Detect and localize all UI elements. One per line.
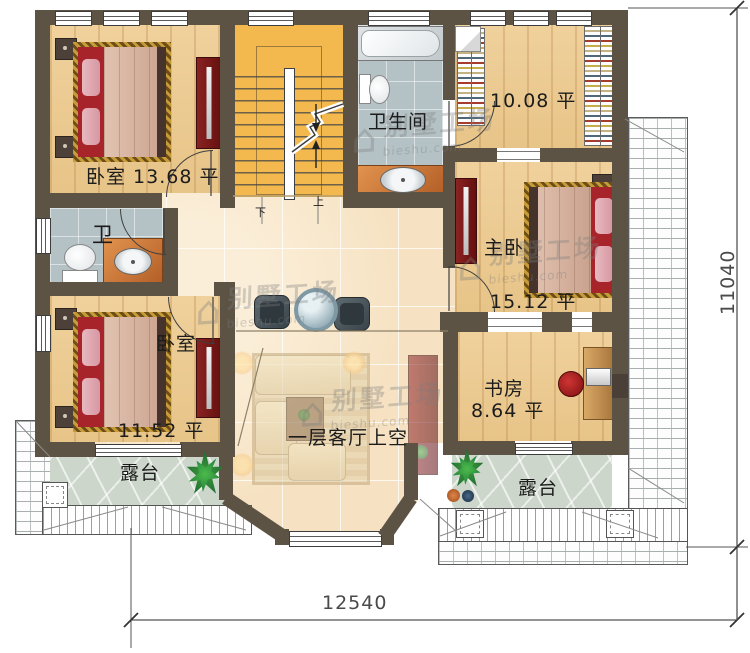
wall-master-bottom-b [542, 312, 572, 332]
wall-bedroom1-bottom [35, 193, 162, 208]
sofa [255, 355, 351, 395]
stair-mark-up: 上 [313, 193, 324, 209]
window [95, 444, 182, 457]
label-bedroom-topleft: 卧室 13.68 平 [86, 162, 219, 189]
window [36, 315, 51, 352]
passage-threshold [572, 318, 592, 327]
flower-pot [447, 489, 460, 502]
computer-monitor [586, 368, 611, 386]
stone-trim-right [628, 117, 688, 565]
wall-niche [612, 374, 628, 398]
label-void: 一层客厅上空 [288, 423, 408, 450]
terrace-right-stone-band [438, 540, 688, 565]
plant [450, 448, 484, 490]
tv-cabinet [455, 178, 477, 264]
wall-toilet-bottom [35, 282, 178, 296]
window [556, 11, 592, 26]
label-master-name: 主卧 [484, 233, 524, 260]
terrace-pillar [456, 510, 484, 538]
terrace-pillar [42, 482, 68, 508]
tv-cabinet [196, 57, 222, 149]
wall-study-west [443, 332, 458, 441]
office-chair [558, 371, 584, 397]
label-bathroom: 卫生间 [368, 107, 428, 134]
wall-stairs-bathroom [343, 10, 358, 192]
dimension-width: 12540 [322, 592, 382, 614]
lamp-glow [342, 351, 366, 375]
stair-railing [284, 68, 295, 200]
wall-bay-post-l [275, 529, 289, 545]
wall-study-bottom-b [571, 441, 612, 455]
label-toilet: 卫 [92, 219, 114, 249]
dimension-height: 11040 [717, 250, 739, 315]
window [248, 11, 294, 26]
wall-bathroom-bottom [343, 192, 455, 208]
wall-toilet-bottom-stub [214, 282, 235, 296]
label-bedroom2-area: 11.52 平 [118, 416, 204, 443]
window [513, 11, 549, 26]
wall-closet-bottom-r [540, 148, 612, 162]
bed-master [524, 182, 622, 298]
chair [254, 295, 290, 329]
stair-mark-down: 下 [255, 204, 266, 220]
flower-pot [462, 490, 474, 502]
floor-plan: 卧室 13.68 平 10.08 平 卫生间 主卧 15.12 平 书房 8.6… [0, 0, 750, 653]
label-terrace-left: 露台 [120, 458, 160, 485]
wall-master-bottom-c [592, 312, 612, 332]
wall-bedroom1-stairs [220, 10, 235, 208]
window [55, 11, 92, 26]
wall-bay-post-r [380, 529, 394, 545]
label-bedroom2-name: 卧室 [156, 329, 196, 356]
window [103, 11, 140, 26]
wall-master-bottom-a [440, 312, 488, 332]
bay-window [289, 531, 382, 547]
plant [186, 450, 224, 498]
terrace-left-railing [42, 505, 252, 535]
chair [334, 297, 370, 331]
wall-bedroom2-right [220, 296, 235, 443]
window [470, 11, 506, 26]
bed [73, 42, 171, 162]
window [368, 11, 430, 26]
terrace-pillar [606, 510, 634, 538]
passage-threshold [497, 151, 540, 160]
passage-threshold [488, 318, 542, 327]
toilet-bowl [369, 75, 390, 104]
bathtub [357, 26, 444, 61]
window [151, 11, 188, 26]
window [515, 443, 573, 455]
sink [380, 167, 426, 193]
sink [114, 248, 152, 275]
label-study-area: 8.64 平 [471, 396, 544, 423]
label-terrace-right: 露台 [518, 473, 558, 500]
label-master-area: 15.12 平 [490, 287, 576, 314]
wall-closet-bottom-l [443, 148, 497, 162]
window [36, 218, 51, 254]
round-table [294, 288, 338, 332]
tv-cabinet [196, 338, 222, 418]
wall-bath-closet-upper [443, 10, 455, 100]
corner-shelf [455, 26, 481, 52]
label-closet-area: 10.08 平 [490, 86, 576, 113]
wall-bedroom2-bottom-a [35, 442, 95, 457]
flower-dot [298, 409, 310, 421]
wall-bay-right [404, 443, 418, 500]
